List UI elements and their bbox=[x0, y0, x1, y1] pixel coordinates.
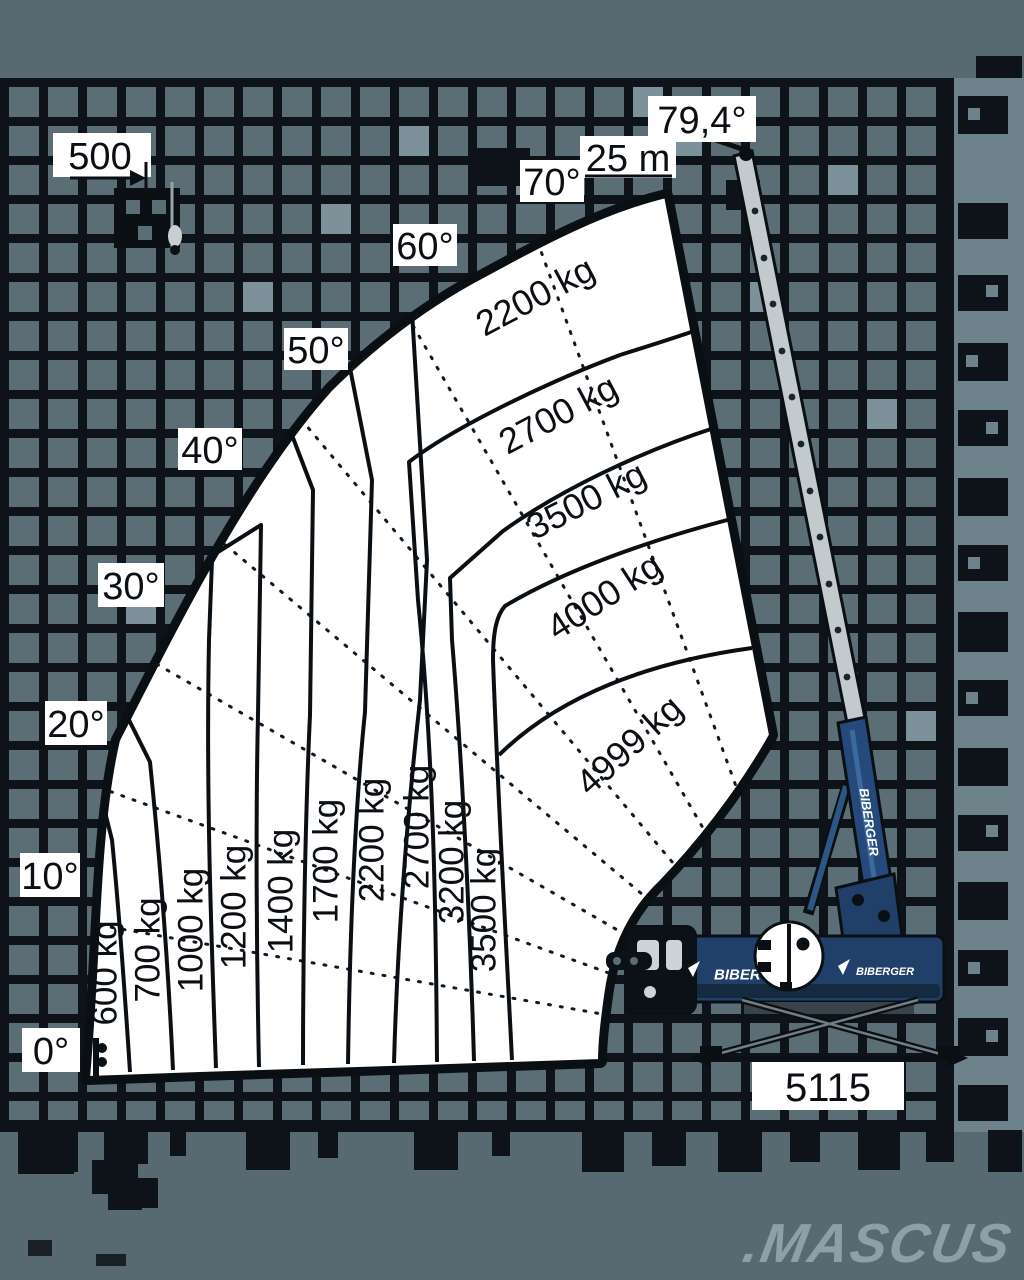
capacity-band-label-600: 600 kg bbox=[86, 920, 125, 1025]
angle-label-20: 20° bbox=[47, 704, 104, 746]
angle-label-10: 10° bbox=[21, 856, 78, 898]
turntable-icon bbox=[755, 922, 823, 990]
boom-length-label: 25 m bbox=[586, 138, 670, 180]
brand-decal-body-left: BIBER bbox=[714, 967, 761, 984]
outrigger-span-label: 5115 bbox=[785, 1066, 871, 1110]
capacity-band-label-2700: 2700 kg bbox=[398, 765, 437, 890]
angle-label-40: 40° bbox=[181, 430, 238, 472]
boom-length-group: 25 m bbox=[580, 136, 676, 180]
crane-load-diagram: 600 kg 700 kg 1000 kg 1200 kg 1400 kg 17… bbox=[0, 0, 1024, 1280]
capacity-band-label-1200: 1200 kg bbox=[215, 845, 254, 970]
capacity-band-label-1400: 1400 kg bbox=[262, 829, 301, 954]
capacity-band-label-1000: 1000 kg bbox=[172, 868, 211, 993]
load-diagram-page: 600 kg 700 kg 1000 kg 1200 kg 1400 kg 17… bbox=[0, 0, 1024, 1280]
watermark-logo: .MASCUS bbox=[739, 1212, 1017, 1274]
angle-label-50: 50° bbox=[287, 330, 344, 372]
brand-decal-body-right: BIBERGER bbox=[856, 966, 914, 978]
winch-capacity-label: 500 bbox=[68, 136, 131, 178]
angle-label-70: 70° bbox=[523, 162, 580, 204]
winch-icon bbox=[114, 182, 182, 255]
angle-label-79-4: 79,4° bbox=[657, 100, 746, 142]
capacity-band-label-1700: 1700 kg bbox=[307, 799, 346, 924]
capacity-band-label-2200: 2200 kg bbox=[353, 778, 392, 903]
watermark-text: .MASCUS bbox=[739, 1212, 1017, 1274]
angle-label-60: 60° bbox=[396, 226, 453, 268]
hook-rest bbox=[606, 952, 652, 970]
capacity-band-label-700: 700 kg bbox=[129, 897, 168, 1002]
angle-label-0: 0° bbox=[33, 1031, 69, 1073]
angle-label-30: 30° bbox=[102, 566, 159, 608]
capacity-band-label-3500: 3500 kg bbox=[465, 848, 504, 973]
